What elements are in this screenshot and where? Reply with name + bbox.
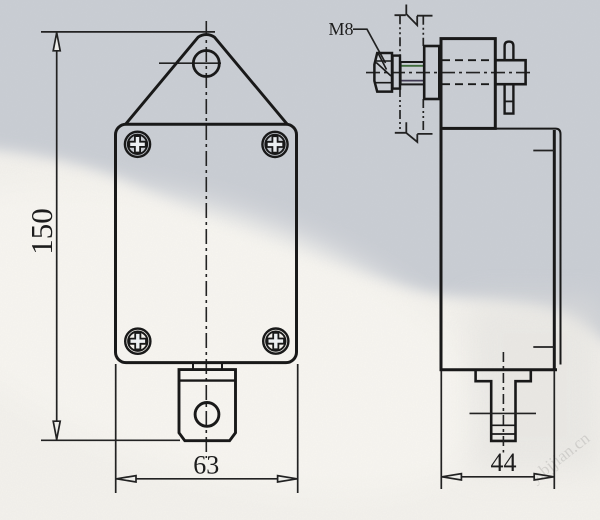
- svg-text:150: 150: [24, 208, 59, 255]
- svg-text:44: 44: [491, 448, 517, 477]
- svg-text:M8: M8: [329, 19, 354, 39]
- svg-text:63: 63: [193, 451, 219, 480]
